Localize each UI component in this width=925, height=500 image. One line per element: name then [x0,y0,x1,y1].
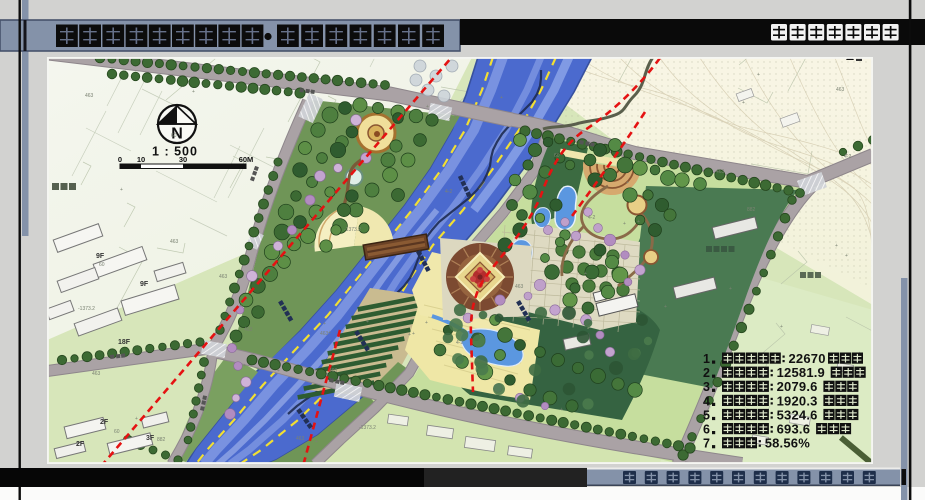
svg-text:9F: 9F [140,281,149,288]
svg-text:4-2: 4-2 [588,215,595,221]
svg-text:60: 60 [114,429,120,435]
svg-text:2: 2 [703,366,710,380]
svg-text:+: + [560,407,563,413]
svg-text:+: + [845,253,848,259]
svg-text:+: + [311,244,314,250]
svg-text:463: 463 [244,327,253,333]
svg-text:2079.6: 2079.6 [777,379,818,394]
svg-text:5: 5 [703,408,710,422]
svg-text:+: + [742,100,745,106]
svg-text:+: + [243,363,246,369]
svg-text:60: 60 [554,153,560,159]
svg-text:60: 60 [171,133,177,139]
svg-text:58.56%: 58.56% [765,436,811,451]
svg-text:4-2: 4-2 [456,340,463,346]
svg-text:30: 30 [179,155,187,164]
svg-text:463: 463 [836,87,845,93]
svg-text:463: 463 [329,368,338,374]
svg-text:+: + [328,330,331,336]
svg-text:882: 882 [747,207,756,213]
svg-text:18F: 18F [118,339,131,346]
svg-text:+: + [626,180,629,186]
svg-text:+: + [423,177,426,183]
svg-text:9F: 9F [96,253,105,260]
svg-text:+: + [729,286,732,292]
svg-text:+: + [835,243,838,249]
svg-text:60M: 60M [239,155,254,164]
svg-text:463: 463 [219,274,228,280]
svg-text:463: 463 [716,169,725,175]
svg-text:3: 3 [703,380,710,394]
svg-text:+: + [277,368,280,374]
svg-text:1 : 500: 1 : 500 [152,145,198,159]
svg-text:463: 463 [85,93,94,99]
svg-text:2F: 2F [100,419,109,426]
svg-text:4-2: 4-2 [449,116,456,122]
svg-text:+: + [623,221,626,227]
svg-text:+: + [412,331,415,337]
svg-text:+: + [323,321,326,327]
svg-text:4-2: 4-2 [445,189,452,195]
svg-text:463: 463 [92,371,101,377]
svg-text:+: + [483,280,486,286]
svg-text:+: + [135,416,138,422]
svg-text:463: 463 [296,436,305,442]
svg-text:10: 10 [137,155,145,164]
svg-text:22670: 22670 [789,351,826,366]
svg-text:+: + [757,72,760,78]
svg-text:1920.3: 1920.3 [777,393,818,408]
svg-text:+: + [637,219,640,225]
svg-text:-1373.2: -1373.2 [344,227,361,233]
svg-text:+: + [664,304,667,310]
svg-text:+: + [780,324,783,330]
svg-text:+: + [845,152,848,158]
svg-text:+: + [315,439,318,445]
svg-text:882: 882 [157,437,166,443]
svg-text:5324.6: 5324.6 [777,407,818,422]
svg-text:+: + [425,320,428,326]
svg-text:+: + [426,104,429,110]
svg-text:+: + [408,332,411,338]
svg-text:+: + [500,95,503,101]
svg-text:3F: 3F [146,435,155,442]
svg-text:6: 6 [703,423,710,437]
svg-text:60: 60 [99,262,105,268]
svg-text:0: 0 [118,155,122,164]
svg-text:-1373.2: -1373.2 [359,425,376,431]
svg-text:7: 7 [703,437,710,451]
svg-text:+: + [120,187,123,193]
svg-text:+: + [464,404,467,410]
svg-text:463: 463 [515,284,524,290]
svg-text:+: + [192,89,195,95]
svg-text:2F: 2F [76,441,85,448]
svg-text:+: + [366,319,369,325]
svg-text:463: 463 [170,239,179,245]
svg-text:693.6: 693.6 [777,422,811,437]
svg-text:4: 4 [703,394,710,408]
svg-text:12581.9: 12581.9 [777,365,825,380]
svg-text:+: + [584,271,587,277]
svg-text:1: 1 [703,352,710,366]
svg-text:-1373.2: -1373.2 [78,306,95,312]
